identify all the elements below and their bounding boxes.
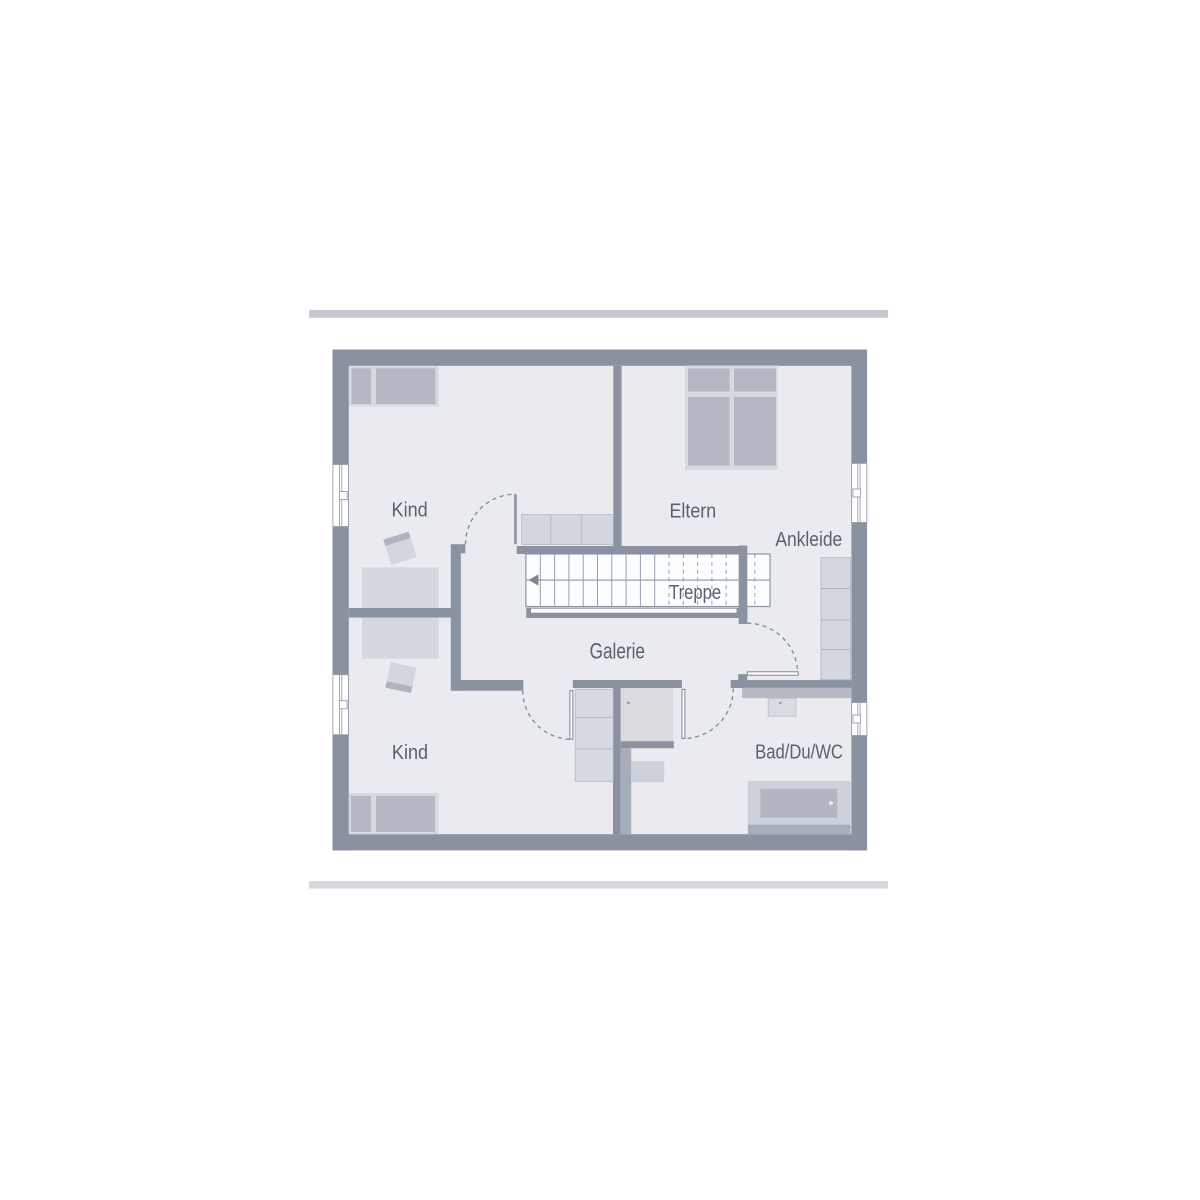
- svg-text:Galerie: Galerie: [590, 639, 645, 664]
- svg-text:Ankleide: Ankleide: [775, 529, 842, 552]
- svg-text:Kind: Kind: [392, 499, 428, 521]
- svg-text:Kind: Kind: [392, 742, 428, 764]
- svg-text:Eltern: Eltern: [669, 501, 716, 523]
- svg-text:Bad/Du/WC: Bad/Du/WC: [755, 740, 843, 763]
- svg-text:Treppe: Treppe: [669, 580, 721, 603]
